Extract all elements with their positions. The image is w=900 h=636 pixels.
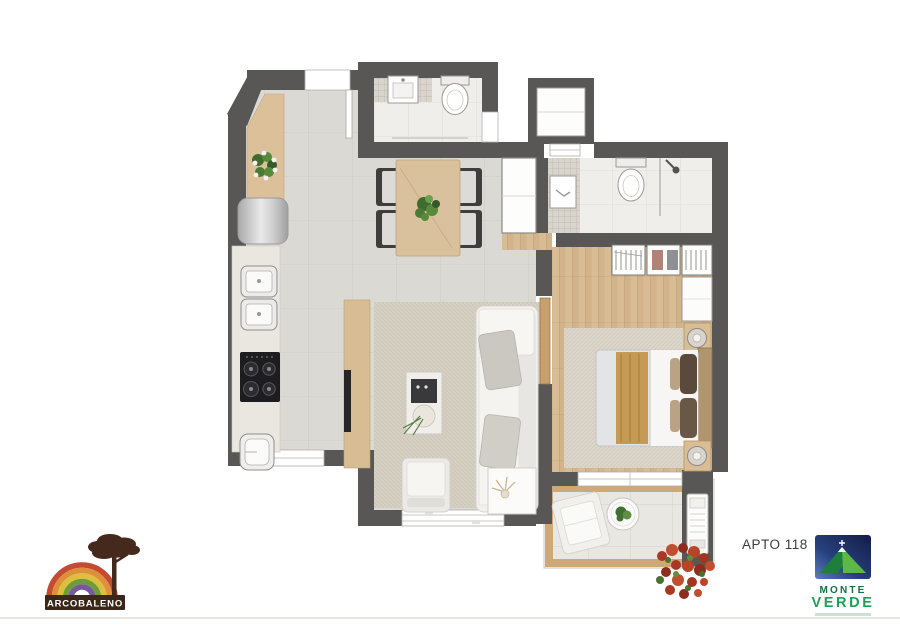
- side-table: [488, 468, 536, 514]
- bed-pillow: [680, 398, 697, 438]
- bathroom2-window: [550, 144, 580, 156]
- arcobaleno-label: ARCOBALENO: [47, 599, 123, 610]
- armchair: [402, 458, 450, 512]
- nightstand: [684, 441, 711, 471]
- mountain-icon: [815, 535, 871, 580]
- bed-pillow: [670, 358, 680, 390]
- arcobaleno-logo: ARCOBALENO: [40, 527, 190, 615]
- verde-text: VERDE: [810, 596, 876, 610]
- headboard: [698, 348, 712, 448]
- folded-clothes: [652, 250, 663, 270]
- unit-label: APTO 118: [742, 537, 808, 552]
- bedroom-doorway-floor: [502, 233, 552, 250]
- monte-verde-tagline-strip: [815, 613, 871, 616]
- grill-counter: [687, 494, 708, 554]
- bed: [596, 348, 712, 448]
- bed-pillow: [680, 354, 697, 394]
- balcony-table: [607, 498, 639, 530]
- floor-plan-page: ARCOBALENO APTO 118 MONTE VERDE: [0, 0, 900, 636]
- laundry-tank: [240, 434, 274, 470]
- bathroom1-door: [482, 112, 498, 142]
- folded-clothes: [667, 250, 678, 270]
- bed-pillow: [670, 400, 680, 432]
- monte-verde-logo: MONTE VERDE: [810, 535, 876, 616]
- bathroom2-toilet: [616, 158, 646, 201]
- tv: [344, 370, 351, 432]
- balcony-wood-edge-top: [553, 486, 682, 493]
- sofa-pillow: [479, 414, 521, 470]
- bedroom-door-leaf: [540, 298, 550, 384]
- bathroom2-sink: [550, 176, 576, 208]
- cooktop: [240, 352, 280, 402]
- bedroom-window: [578, 472, 682, 486]
- refrigerator: [238, 198, 288, 244]
- rainbow-icon: [49, 565, 115, 598]
- coffee-table: [403, 372, 442, 435]
- bathroom1-toilet: [441, 76, 469, 115]
- page-bottom-edge: [0, 617, 900, 619]
